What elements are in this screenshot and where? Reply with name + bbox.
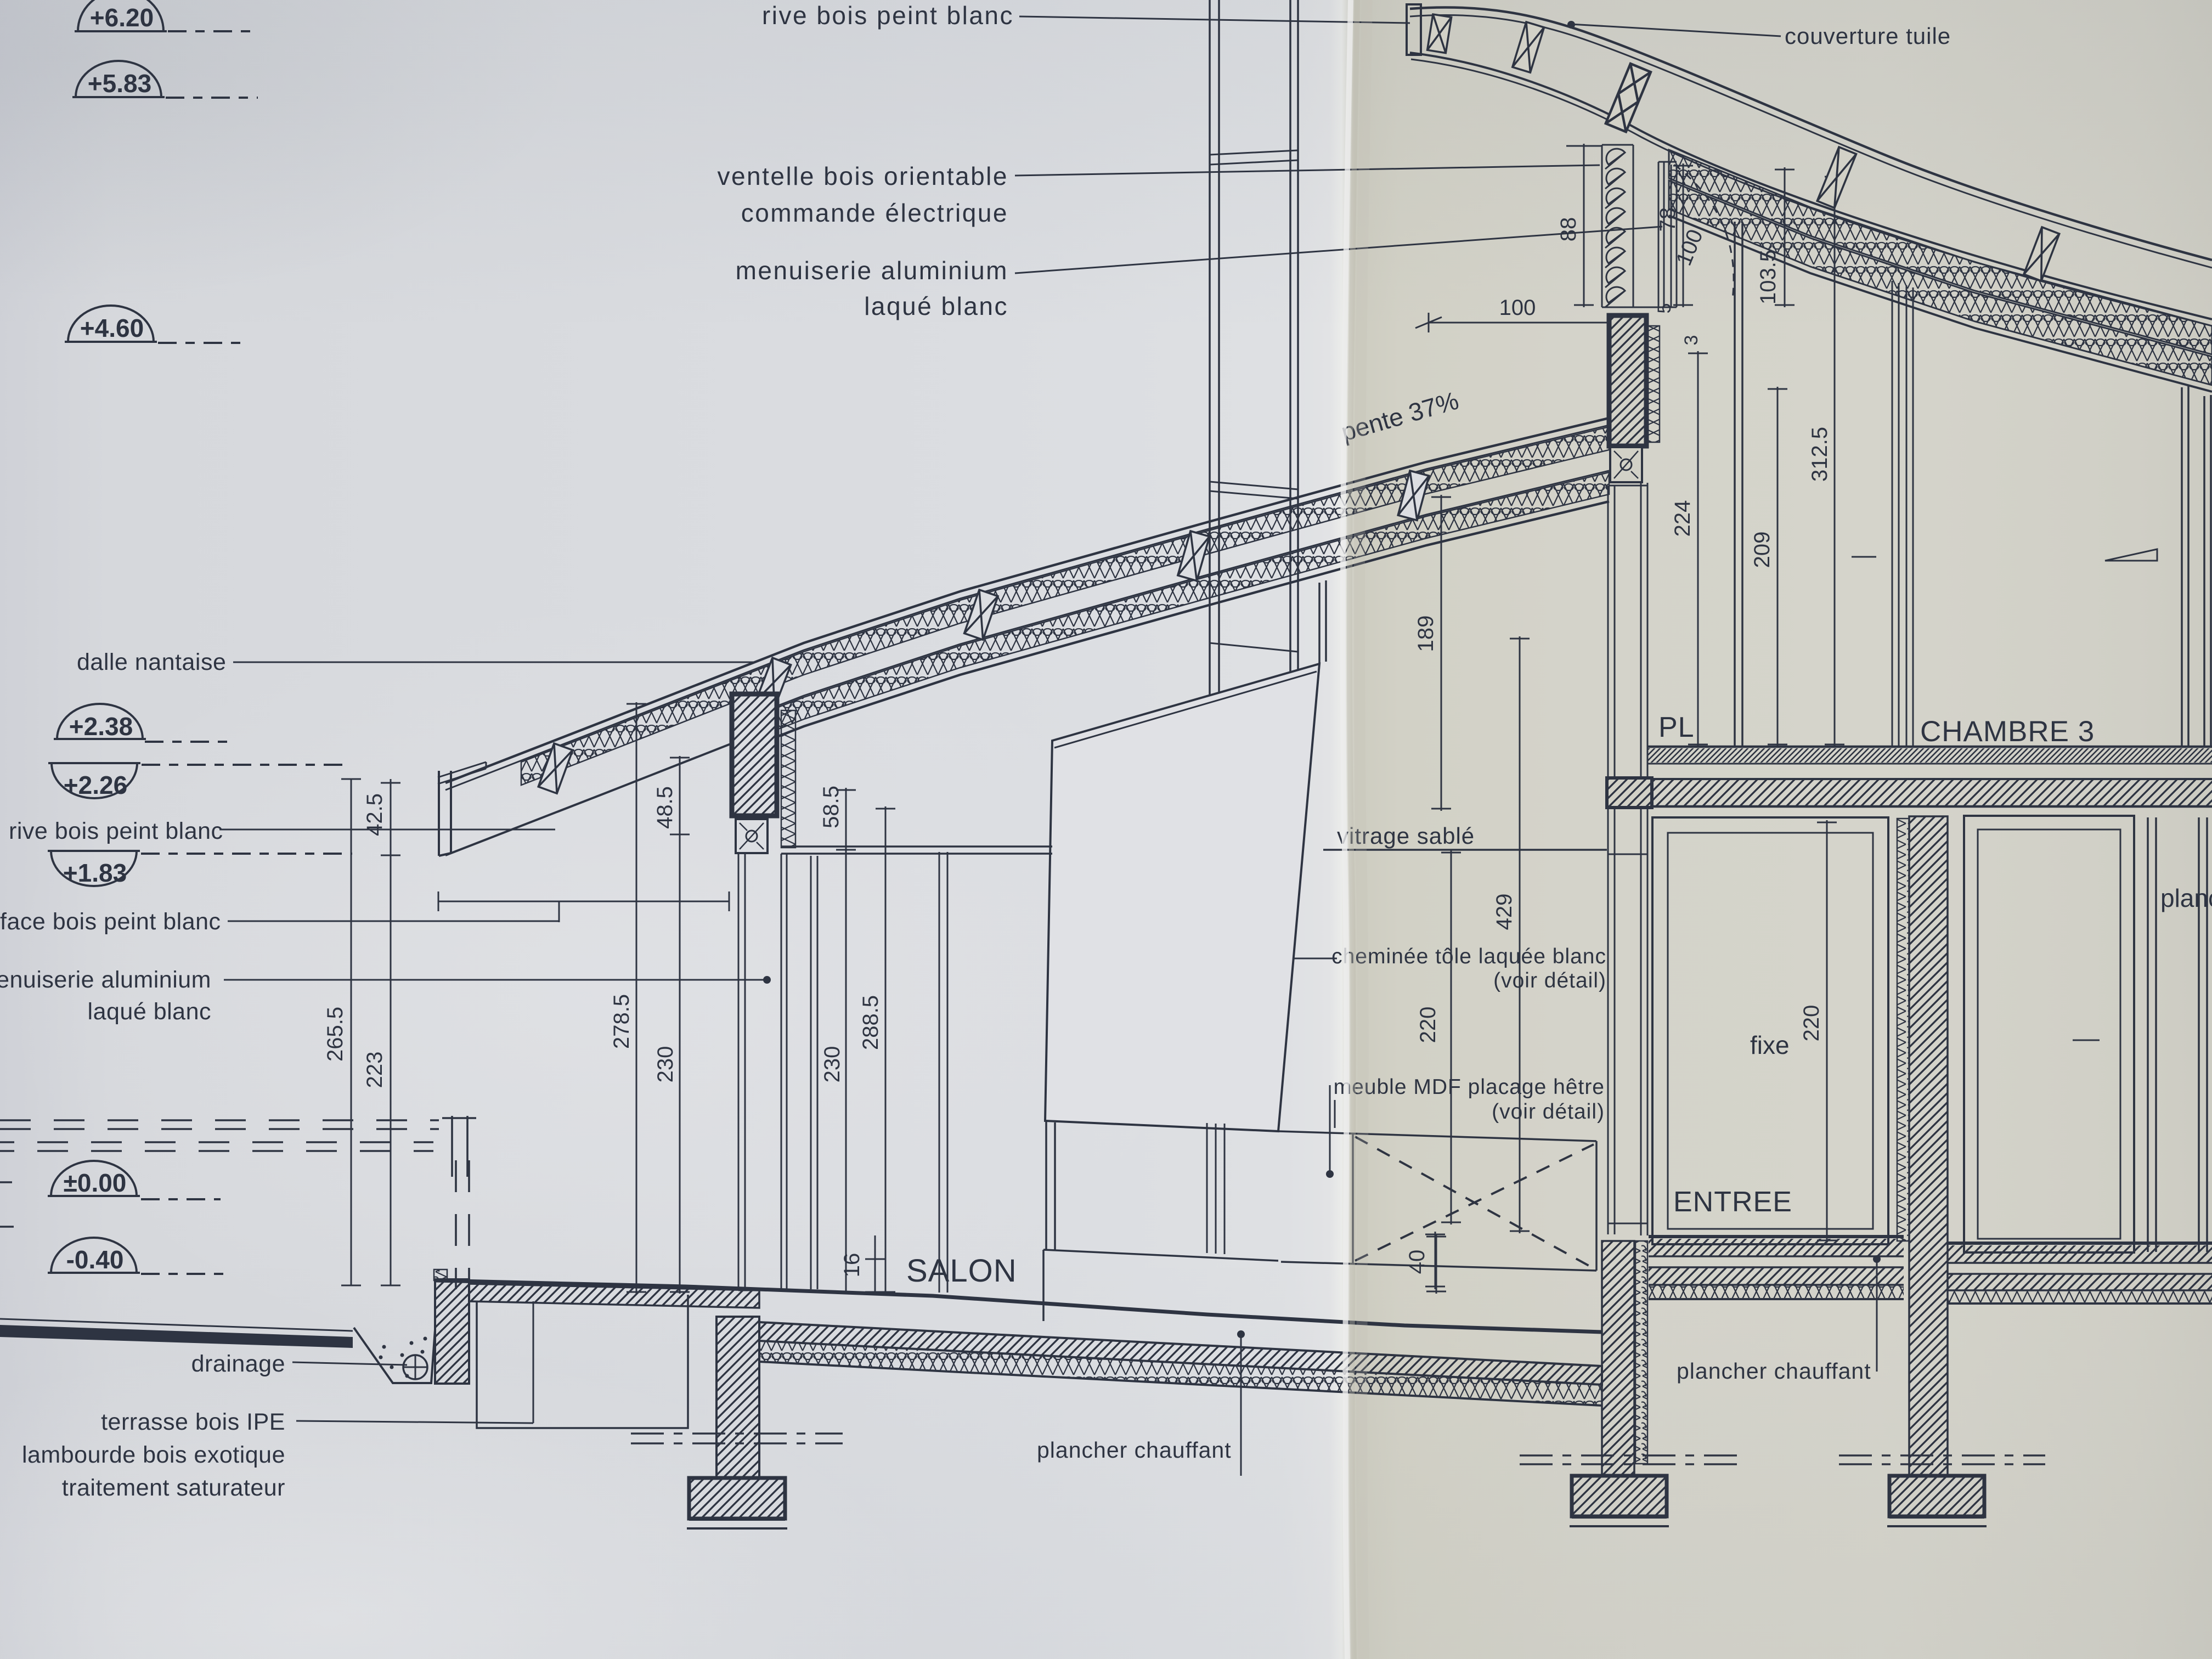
svg-text:189: 189: [1414, 616, 1438, 652]
svg-text:laqué blanc: laqué blanc: [88, 998, 211, 1025]
svg-text:cheminée tôle laquée blanc: cheminée tôle laquée blanc: [1331, 945, 1606, 968]
svg-text:ventelle bois orientable: ventelle bois orientable: [717, 162, 1008, 190]
svg-text:88: 88: [1556, 217, 1581, 242]
svg-text:rive bois peint blanc: rive bois peint blanc: [9, 818, 223, 844]
svg-text:220: 220: [1799, 1005, 1824, 1042]
svg-text:plancher chauffant: plancher chauffant: [1037, 1437, 1232, 1463]
svg-text:+6.20: +6.20: [90, 3, 154, 32]
svg-text:laqué blanc: laqué blanc: [864, 292, 1008, 320]
svg-text:plancher chauffant: plancher chauffant: [1677, 1358, 1871, 1384]
svg-text:terrasse bois IPE: terrasse bois IPE: [101, 1409, 285, 1435]
svg-text:103.5: 103.5: [1756, 250, 1780, 304]
svg-text:menuiserie aluminium: menuiserie aluminium: [0, 967, 211, 993]
svg-text:(voir détail): (voir détail): [1492, 1100, 1605, 1124]
svg-text:230: 230: [820, 1046, 844, 1083]
svg-text:face bois peint blanc: face bois peint blanc: [0, 909, 221, 935]
svg-text:(voir détail): (voir détail): [1493, 969, 1606, 992]
svg-text:dalle nantaise: dalle nantaise: [77, 649, 226, 675]
svg-text:209: 209: [1750, 532, 1774, 568]
svg-text:CHAMBRE 3: CHAMBRE 3: [1920, 715, 2095, 748]
svg-text:100: 100: [1499, 296, 1536, 320]
svg-text:3: 3: [1681, 335, 1702, 346]
svg-text:-0.40: -0.40: [66, 1245, 124, 1274]
svg-text:traitement saturateur: traitement saturateur: [62, 1475, 285, 1501]
svg-text:+1.83: +1.83: [63, 859, 127, 887]
svg-text:288.5: 288.5: [859, 995, 883, 1050]
svg-text:meuble MDF placage hêtre: meuble MDF placage hêtre: [1334, 1075, 1605, 1099]
svg-text:SALON: SALON: [906, 1253, 1017, 1289]
svg-text:planche: planche: [2160, 884, 2212, 912]
svg-text:265.5: 265.5: [323, 1007, 347, 1062]
svg-text:PL: PL: [1658, 712, 1695, 743]
svg-text:42.5: 42.5: [363, 793, 387, 836]
svg-text:220: 220: [1416, 1007, 1440, 1043]
svg-text:+5.83: +5.83: [88, 69, 151, 98]
svg-text:couverture tuile: couverture tuile: [1785, 23, 1951, 49]
svg-text:rive bois peint blanc: rive bois peint blanc: [762, 1, 1014, 30]
svg-text:fixe: fixe: [1750, 1031, 1790, 1059]
svg-text:+2.38: +2.38: [69, 712, 133, 741]
svg-text:16: 16: [840, 1253, 864, 1278]
svg-text:40: 40: [1405, 1250, 1429, 1274]
svg-text:48.5: 48.5: [653, 786, 677, 829]
svg-text:230: 230: [653, 1046, 678, 1083]
svg-text:278.5: 278.5: [610, 994, 634, 1049]
svg-text:lambourde bois exotique: lambourde bois exotique: [22, 1442, 285, 1468]
svg-text:+4.60: +4.60: [80, 314, 144, 342]
svg-text:drainage: drainage: [191, 1351, 285, 1377]
svg-text:429: 429: [1492, 894, 1516, 930]
svg-text:menuiserie aluminium: menuiserie aluminium: [736, 256, 1008, 285]
svg-text:58.5: 58.5: [819, 786, 843, 828]
svg-text:+2.26: +2.26: [64, 771, 127, 799]
svg-text:±0.00: ±0.00: [64, 1169, 127, 1197]
svg-text:224: 224: [1671, 500, 1695, 537]
svg-text:312.5: 312.5: [1808, 427, 1832, 482]
svg-text:commande électrique: commande électrique: [741, 199, 1008, 227]
svg-text:223: 223: [363, 1052, 387, 1088]
svg-text:ENTREE: ENTREE: [1673, 1186, 1792, 1218]
